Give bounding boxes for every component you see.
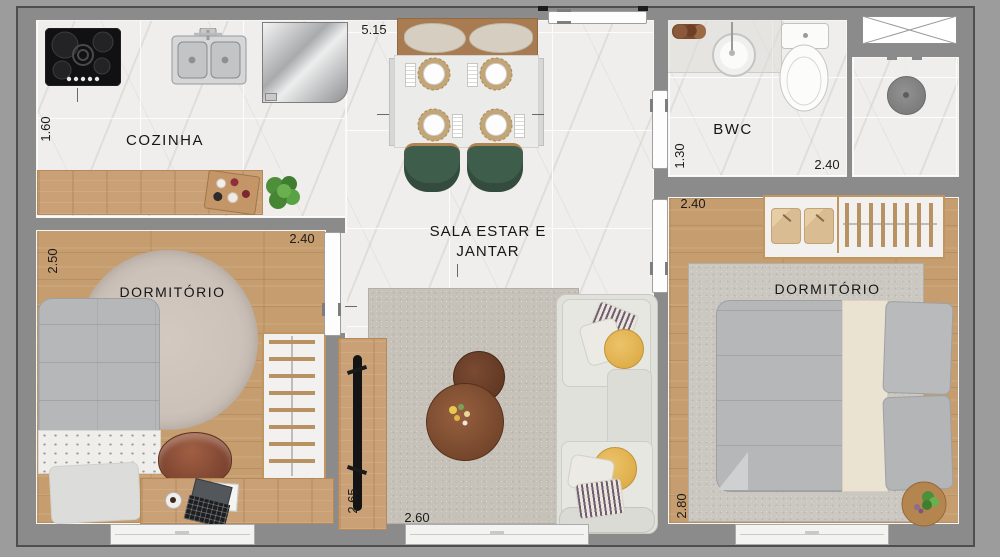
dining-bench [397,18,538,57]
dim-living-top: 5.15 [355,22,393,36]
room-label-living-line2: JANTAR [413,242,563,262]
napkin [452,114,463,138]
room-label-living: SALA ESTAR E JANTAR [413,222,563,264]
door-handle [322,303,325,316]
door-handle [338,303,341,316]
window [735,524,889,545]
place-setting [477,55,515,98]
bedroom-right-door [652,199,668,293]
window-pane-line [115,534,250,535]
bed-pillow [882,395,953,491]
dim-bedroom-right-width: 2.40 [674,196,712,210]
door-handle [557,9,571,12]
shower-head [887,76,926,115]
door-handle [665,99,668,112]
fridge [262,22,348,103]
coffee-table-large [426,383,504,461]
shower-control [912,57,922,60]
dim-bedroom-left-depth: 2.50 [45,239,59,283]
plant-tray [900,481,948,527]
shower-control [887,57,897,60]
bed-blanket [842,300,888,492]
condiment-jar [230,178,239,187]
flower-vase [443,400,477,430]
condiment-jar [216,178,227,189]
window-latch [175,531,189,534]
room-label-kitchen: COZINHA [90,131,240,149]
room-label-living-line1: SALA ESTAR E [413,222,563,242]
dining-chair [467,143,523,192]
room-label-bedroom-right: DORMITÓRIO [755,280,900,298]
wall-tick [538,6,548,11]
dim-living-tv-wall: 2.65 [345,479,359,523]
dimension-tick [532,114,544,115]
condiment-tray [204,170,261,216]
bathroom-accessories [672,24,706,39]
door-handle [650,262,653,275]
sink-faucet [731,22,733,52]
dim-bedroom-right-depth: 2.80 [674,484,688,528]
window-pane-line [740,534,884,535]
door-handle [557,21,571,24]
bed-pillow [882,301,953,395]
closet-shelf [765,197,839,253]
fridge-handle [265,93,277,101]
dimension-tick [77,88,78,102]
dimension-tick [377,114,389,115]
coffee-cup [165,492,182,509]
bench-cushion [469,23,533,53]
hangers [269,340,315,472]
window [110,524,255,545]
condiment-jar [227,191,239,203]
toilet-flush-button [803,33,808,38]
shirt-collar [783,214,792,222]
napkin [467,63,478,87]
throw-pillow-striped [575,478,626,520]
floor-plan: 5.15 1.60 COZINHA BWC 1.30 2.40 2.40 2.5… [0,0,1000,557]
dim-living-window: 2.60 [398,510,436,524]
room-label-bedroom-left: DORMITÓRIO [100,283,245,301]
window-pane-line [410,534,584,535]
sofa [556,294,658,534]
folded-shirt [771,208,801,244]
cooktop [45,28,121,86]
condiment-jar [213,191,223,201]
dimension-tick [457,264,458,277]
shirt-collar [816,214,825,222]
hangers [845,203,935,247]
tile-grout-line [852,117,957,118]
dimension-tick [345,306,357,307]
closet-hanging-rail [841,197,939,253]
door-handle [665,262,668,275]
plant [261,172,303,214]
throw-pillow-yellow [604,329,644,369]
dim-bwc-width: 2.40 [808,157,846,171]
window-latch [805,531,819,534]
napkin [405,63,416,87]
bench-cushion [404,23,466,53]
dim-kitchen-depth: 1.60 [38,107,52,151]
bathroom-door [652,90,668,169]
duvet-fold [718,452,748,490]
window-latch [490,531,504,534]
toilet-bowl [779,44,829,112]
kitchen-sink [170,28,248,86]
room-label-bwc: BWC [698,120,768,138]
bed-pillow [49,462,142,525]
entrance-door [548,11,647,24]
dim-bedroom-left-width: 2.40 [283,231,321,245]
closet [763,195,945,259]
place-setting [415,55,453,98]
bedroom-left-door [324,232,341,336]
dim-bwc-depth: 1.30 [672,134,686,178]
folded-shirt [804,208,834,244]
bed-duvet [38,298,160,440]
wardrobe-rail [262,332,326,484]
coffee [170,497,176,503]
door-handle [650,99,653,112]
shaft-box [862,16,957,44]
window [405,524,589,545]
shower-head-center [903,92,909,98]
sink-drain [729,50,735,56]
dining-chair [404,143,460,192]
napkin [514,114,525,138]
tile-grout-line [668,117,845,118]
condiment-jar [241,189,250,198]
